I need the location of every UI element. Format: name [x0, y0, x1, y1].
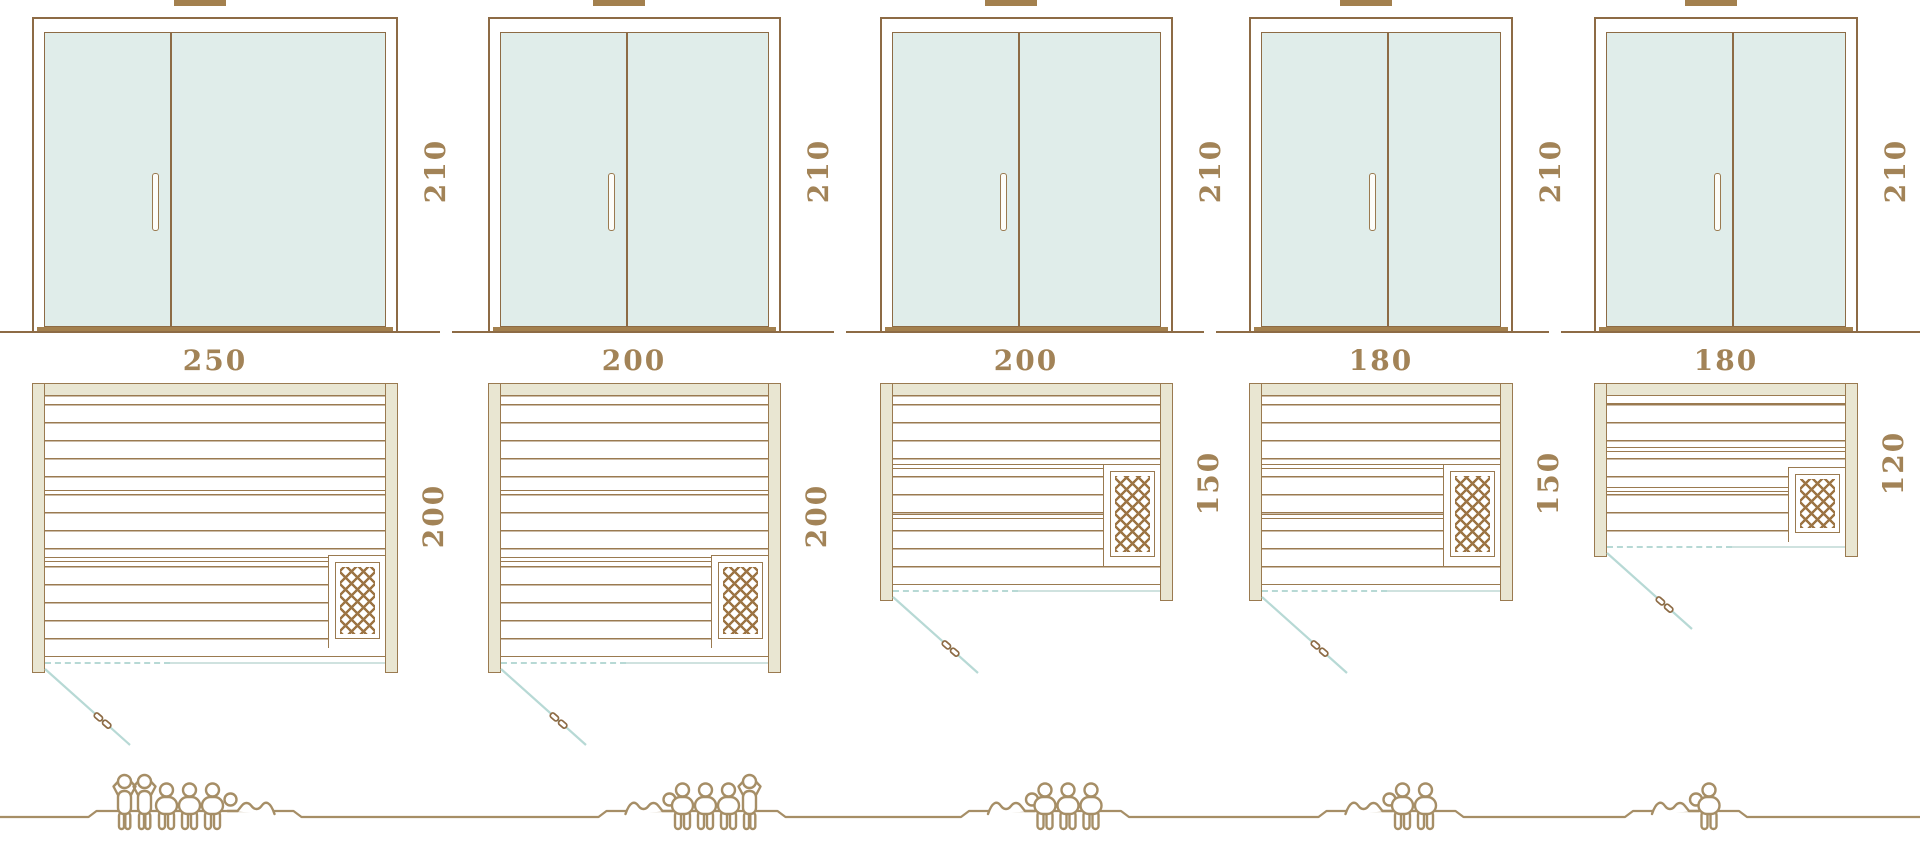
plan-post-right [1160, 383, 1173, 601]
lying-person-icon [1346, 794, 1396, 815]
glass-double-doors [1261, 32, 1501, 327]
top-marker-bar [985, 0, 1037, 6]
bench-edge-line [501, 490, 768, 495]
plan-depth-dimension: 150 [1535, 438, 1563, 528]
lying-person-icon [626, 794, 676, 815]
heater-box [1450, 471, 1495, 557]
plan-depth-dimension: 200 [803, 471, 831, 561]
ground-line [452, 331, 834, 333]
sauna-size-comparison-diagram: 210250 200210200 200210200 150210180 [0, 0, 1920, 856]
door-split-line [170, 33, 172, 326]
door-swing-line-icon [1257, 595, 1387, 715]
glass-double-doors [1606, 32, 1846, 327]
door-handle-icon [608, 173, 615, 231]
door-opening-dashed-line [1607, 546, 1732, 548]
heater-zone [1103, 464, 1160, 566]
door-swing-line-icon [40, 667, 170, 787]
top-marker-bar [1340, 0, 1392, 6]
sitting-person-icon [1415, 784, 1436, 830]
top-marker-bar [1685, 0, 1737, 6]
door-opening-dashed-line [1262, 590, 1387, 592]
door-swing-line-icon [888, 595, 1018, 715]
plan-post-right [1500, 383, 1513, 601]
plan-width-dimension: 250 [145, 347, 285, 375]
door-height-dimension: 210 [1537, 126, 1565, 216]
plan-wall-top [32, 383, 398, 396]
door-handle-icon [152, 173, 159, 231]
heater-hatch-icon [723, 567, 758, 634]
heater-hatch-icon [1115, 476, 1150, 552]
door-opening-dashed-line [893, 590, 1018, 592]
door-height-dimension: 210 [422, 126, 450, 216]
plan-width-dimension: 180 [1656, 347, 1796, 375]
ground-line [0, 331, 440, 333]
floor-plan [1249, 383, 1513, 601]
door-elevation-frame [1594, 17, 1858, 333]
sitting-person-icon [156, 784, 177, 830]
sitting-person-icon [695, 784, 716, 830]
door-elevation-frame [1249, 17, 1513, 333]
bench-edge-line [1607, 447, 1845, 452]
plan-wall-top [1249, 383, 1513, 396]
glass-double-doors [500, 32, 769, 327]
plan-depth-dimension: 120 [1880, 418, 1908, 508]
plan-post-right [385, 383, 398, 673]
ground-line [1216, 331, 1549, 333]
floor-plan [880, 383, 1173, 601]
heater-box [1795, 474, 1840, 533]
heater-hatch-icon [340, 567, 375, 634]
plan-post-left [1249, 383, 1262, 601]
sitting-person-icon [202, 784, 223, 830]
floor-plan [32, 383, 398, 673]
fixed-glass-line [1018, 590, 1160, 592]
glass-double-doors [44, 32, 386, 327]
plan-post-right [1845, 383, 1858, 557]
capacity-row [0, 770, 1920, 856]
door-split-line [1732, 33, 1734, 326]
floor-plan [1594, 383, 1858, 557]
heater-zone [711, 555, 768, 648]
heater-zone [1443, 464, 1500, 566]
heater-box [335, 562, 380, 639]
door-elevation-frame [488, 17, 781, 333]
door-split-line [626, 33, 628, 326]
door-opening-dashed-line [45, 662, 170, 664]
plan-post-left [880, 383, 893, 601]
door-handle-icon [1000, 173, 1007, 231]
ground-line [846, 331, 1204, 333]
plan-wall-top [488, 383, 781, 396]
heater-box [718, 562, 763, 639]
lying-person-icon [988, 794, 1038, 815]
floor-plan [488, 383, 781, 673]
plan-depth-dimension: 200 [420, 471, 448, 561]
plan-width-dimension: 200 [956, 347, 1096, 375]
heater-hatch-icon [1800, 479, 1835, 528]
door-swing-line-icon [1602, 551, 1732, 671]
plan-post-left [1594, 383, 1607, 557]
sitting-person-icon [1392, 784, 1413, 830]
fixed-glass-line [1732, 546, 1845, 548]
floor-profile-line [0, 811, 1920, 817]
ground-line [1561, 331, 1920, 333]
heater-box [1110, 471, 1155, 557]
plan-depth-dimension: 150 [1195, 438, 1223, 528]
plan-post-left [488, 383, 501, 673]
door-handle-icon [1369, 173, 1376, 231]
fixed-glass-line [626, 662, 768, 664]
heater-zone [328, 555, 385, 648]
standing-person-icon [114, 775, 136, 829]
lying-person-icon [225, 794, 275, 815]
plan-width-dimension: 180 [1311, 347, 1451, 375]
top-marker-bar [593, 0, 645, 6]
door-split-line [1018, 33, 1020, 326]
fixed-glass-line [170, 662, 385, 664]
fixed-glass-line [1387, 590, 1500, 592]
plan-post-right [768, 383, 781, 673]
sitting-person-icon [1035, 784, 1056, 830]
door-elevation-frame [880, 17, 1173, 333]
door-height-dimension: 210 [1197, 126, 1225, 216]
sitting-person-icon [718, 784, 739, 830]
plan-wall-top [880, 383, 1173, 396]
bench-edge-line [45, 490, 385, 495]
top-marker-bar [174, 0, 226, 6]
sitting-person-icon [179, 784, 200, 830]
standing-person-icon [134, 775, 156, 829]
plan-post-left [32, 383, 45, 673]
sitting-person-icon [1699, 784, 1720, 830]
sitting-person-icon [1058, 784, 1079, 830]
plan-wall-top [1594, 383, 1858, 396]
door-opening-dashed-line [501, 662, 626, 664]
heater-hatch-icon [1455, 476, 1490, 552]
door-height-dimension: 210 [1882, 126, 1910, 216]
door-handle-icon [1714, 173, 1721, 231]
sitting-person-icon [1081, 784, 1102, 830]
lying-person-icon [1652, 794, 1702, 815]
sitting-person-icon [672, 784, 693, 830]
door-swing-line-icon [496, 667, 626, 787]
plan-width-dimension: 200 [564, 347, 704, 375]
capacity-people-illustration [0, 770, 1920, 856]
heater-zone [1788, 467, 1845, 542]
door-elevation-frame [32, 17, 398, 333]
door-height-dimension: 210 [805, 126, 833, 216]
standing-person-icon [739, 775, 761, 829]
glass-double-doors [892, 32, 1161, 327]
door-split-line [1387, 33, 1389, 326]
